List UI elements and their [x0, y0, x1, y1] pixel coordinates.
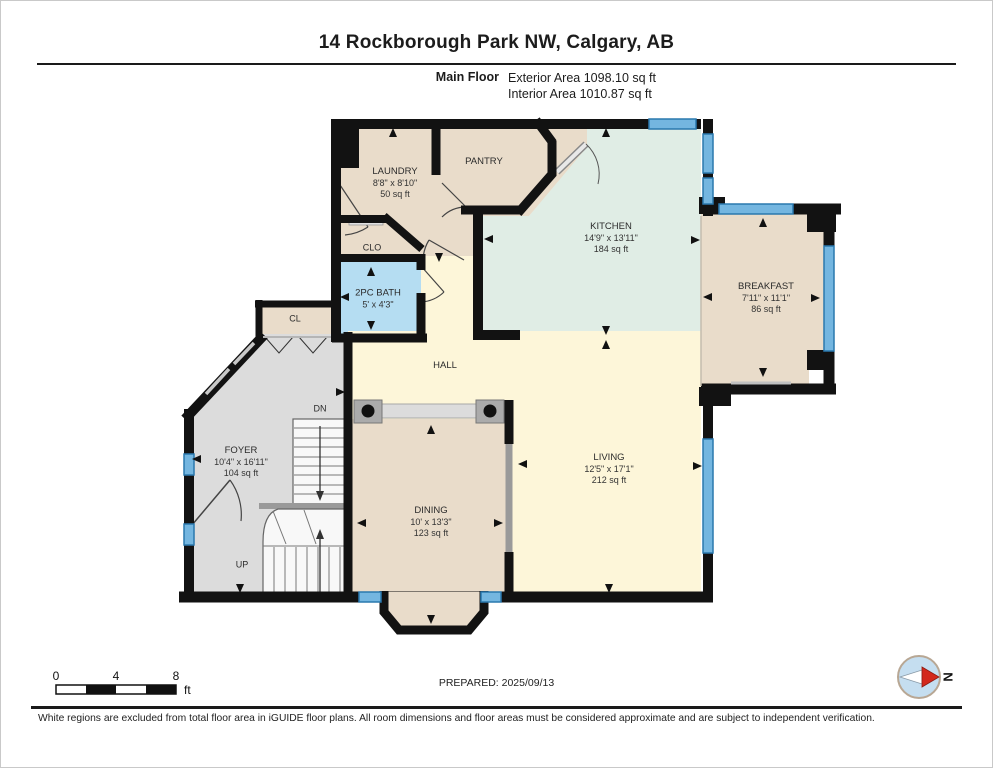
footer-divider: [31, 706, 962, 709]
bay-window: [384, 591, 484, 630]
floorplan-page: 14 Rockborough Park NW, Calgary, AB Main…: [0, 0, 993, 768]
stairs-up-label: UP: [236, 560, 249, 571]
room-label-breakfast: BREAKFAST 7'11" x 11'1" 86 sq ft: [738, 281, 794, 315]
stairs-down-label: DN: [314, 404, 327, 415]
room-label-laundry: LAUNDRY 8'8" x 8'10" 50 sq ft: [372, 166, 417, 200]
room-label-hall: HALL: [433, 360, 457, 372]
room-label-clo: CLO: [363, 243, 382, 254]
room-label-pantry: PANTRY: [465, 156, 503, 168]
compass-north-label: N: [941, 672, 956, 681]
prepared-date: PREPARED: 2025/09/13: [1, 677, 992, 689]
room-label-bath: 2PC BATH 5' x 4'3": [355, 288, 401, 311]
floorplan-canvas: [1, 1, 993, 768]
disclaimer-text: White regions are excluded from total fl…: [38, 713, 972, 724]
room-label-cl: CL: [289, 314, 301, 325]
room-label-living: LIVING 12'5" x 17'1" 212 sq ft: [584, 452, 633, 486]
room-label-foyer: FOYER 10'4" x 16'11" 104 sq ft: [214, 445, 268, 479]
room-label-dining: DINING 10' x 13'3" 123 sq ft: [410, 505, 451, 539]
room-label-kitchen: KITCHEN 14'9" x 13'11" 184 sq ft: [584, 221, 638, 255]
